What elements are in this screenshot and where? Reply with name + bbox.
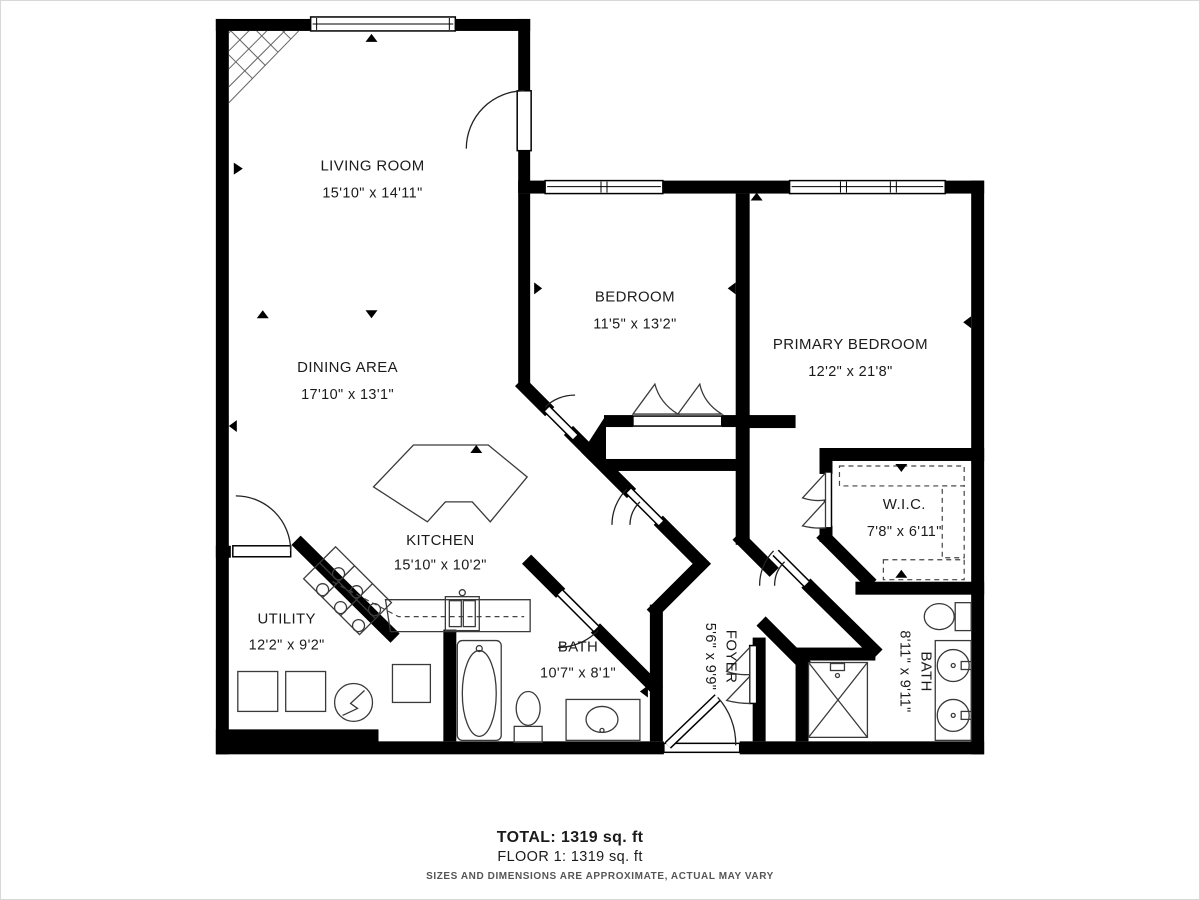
room-label-bedroom: BEDROOM 11'5" x 13'2" [593, 288, 676, 332]
dining-area-name: DINING AREA [297, 359, 398, 376]
primary-bedroom-window [790, 181, 946, 194]
bedroom-window [545, 181, 663, 194]
utility-dims: 12'2" x 9'2" [249, 638, 325, 654]
primary-toilet [924, 603, 971, 631]
wic-dims: 7'8" x 6'11" [867, 524, 942, 540]
living-room-dims: 15'10" x 14'11" [322, 186, 422, 202]
bedroom-name: BEDROOM [595, 288, 675, 305]
living-room-name: LIVING ROOM [320, 158, 424, 175]
bath-name: BATH [558, 639, 598, 656]
total-area-text: TOTAL: 1319 sq. ft [497, 829, 644, 846]
bedroom-door [545, 395, 575, 437]
floor-area-text: FLOOR 1: 1319 sq. ft [497, 849, 642, 865]
washer-dryer [238, 665, 431, 722]
room-label-utility: UTILITY 12'2" x 9'2" [249, 611, 325, 654]
toilet [514, 691, 542, 742]
disclaimer-text: SIZES AND DIMENSIONS ARE APPROXIMATE, AC… [426, 871, 774, 882]
hall-door [612, 489, 661, 525]
bath-vanity [566, 699, 640, 740]
room-label-primary-bedroom: PRIMARY BEDROOM 12'2" x 21'8" [773, 336, 928, 380]
wic-bifold [803, 472, 832, 528]
room-label-kitchen: KITCHEN 15'10" x 10'2" [394, 532, 487, 574]
primary-bedroom-name: PRIMARY BEDROOM [773, 336, 928, 353]
bath-dims: 10'7" x 8'1" [540, 665, 616, 681]
floor-plan-page: LIVING ROOM 15'10" x 14'11" DINING AREA … [0, 0, 1200, 900]
primary-bedroom-dims: 12'2" x 21'8" [808, 364, 892, 380]
room-label-dining-area: DINING AREA 17'10" x 13'1" [297, 359, 398, 403]
kitchen-island [374, 445, 528, 522]
dining-area-dims: 17'10" x 13'1" [301, 387, 394, 403]
primary-bath-dims: 8'11" x 9'11" [896, 630, 912, 712]
living-room-window [311, 17, 456, 31]
bedroom-dims: 11'5" x 13'2" [593, 316, 676, 332]
wic-name: W.I.C. [883, 496, 926, 513]
footer: TOTAL: 1319 sq. ft FLOOR 1: 1319 sq. ft … [426, 829, 774, 882]
primary-bath-name: BATH [917, 651, 934, 691]
kitchen-name: KITCHEN [406, 532, 474, 549]
shower [809, 663, 868, 738]
room-label-living-room: LIVING ROOM 15'10" x 14'11" [320, 158, 424, 202]
room-label-primary-bath: BATH 8'11" x 9'11" [896, 630, 934, 712]
bedroom-closet-bifold [633, 384, 722, 426]
utility-door [233, 496, 291, 557]
floor-plan-drawing: LIVING ROOM 15'10" x 14'11" DINING AREA … [1, 1, 1199, 899]
utility-name: UTILITY [257, 611, 315, 628]
room-label-foyer: FOYER 5'6" x 9'9" [702, 623, 740, 691]
balcony-door [466, 91, 531, 151]
room-label-wic: W.I.C. 7'8" x 6'11" [867, 496, 942, 540]
bathtub [457, 641, 501, 741]
primary-vanity [935, 641, 971, 741]
kitchen-dims: 15'10" x 10'2" [394, 558, 487, 574]
front-door [664, 697, 740, 752]
foyer-dims: 5'6" x 9'9" [702, 623, 718, 691]
foyer-name: FOYER [723, 630, 740, 684]
